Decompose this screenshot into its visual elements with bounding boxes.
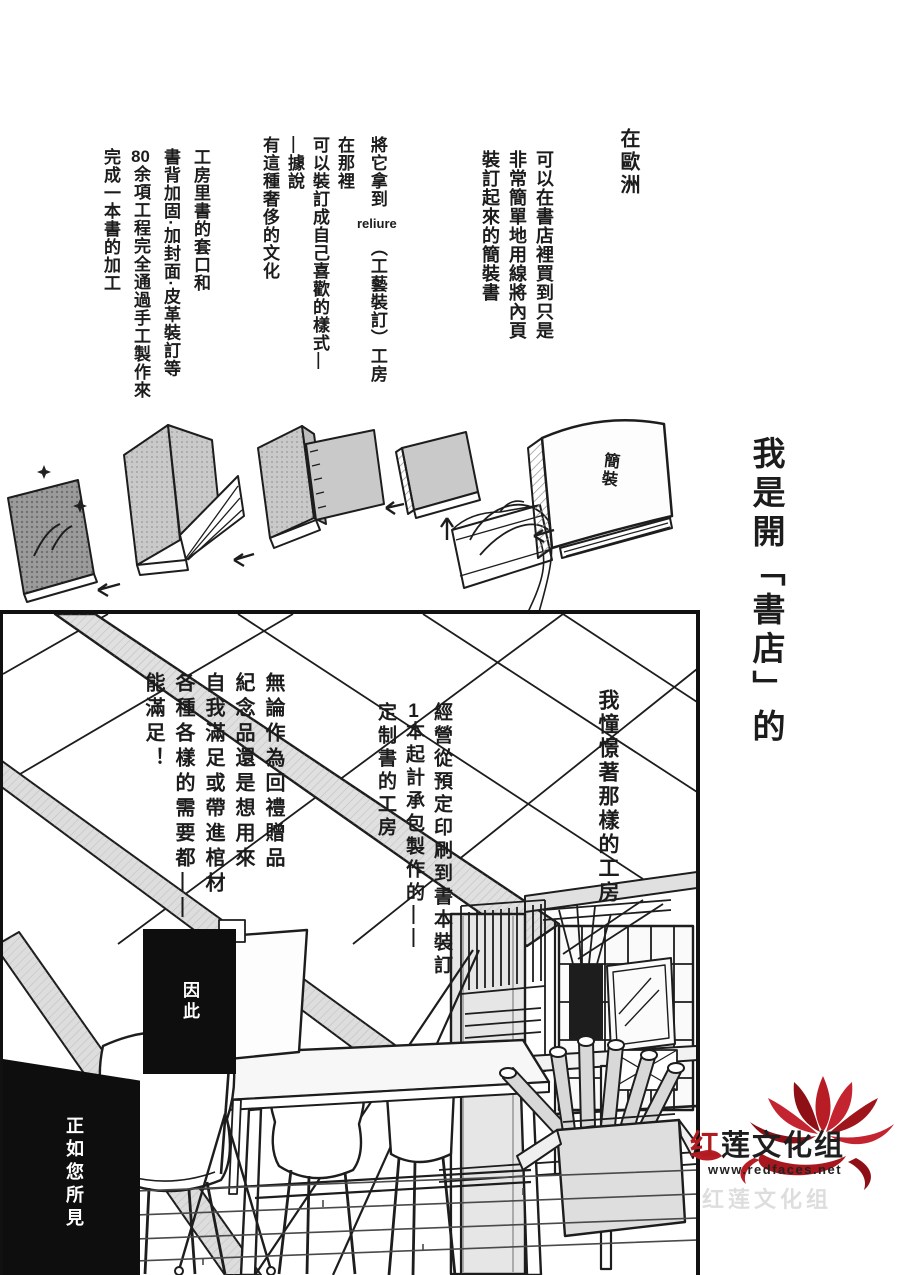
narration-location-text: 在歐洲 bbox=[614, 128, 643, 197]
stitched-block-drawing bbox=[396, 432, 480, 518]
narration-location: 在歐洲 bbox=[614, 128, 643, 197]
number-1: 1 bbox=[403, 702, 424, 721]
logo-url: www.redfaces.net bbox=[708, 1162, 842, 1177]
simple-bound-book-drawing bbox=[528, 420, 672, 558]
logo-ghost: 红莲文化组 bbox=[702, 1182, 832, 1214]
manga-page: 在歐洲 可以在書店裡買到只是 非常簡單地用線將內頁 裝訂起來的簡裝書 將它拿到r… bbox=[0, 0, 900, 1275]
simple-binding-book-label: 簡裝 bbox=[594, 451, 622, 490]
therefore-text: 因此 bbox=[177, 981, 202, 1023]
number-80: 80 bbox=[131, 148, 150, 165]
logo-name: 红莲文化组 bbox=[690, 1122, 845, 1164]
narration-simple-binding: 可以在書店裡買到只是 非常簡單地用線將內頁 裝訂起來的簡裝書 bbox=[476, 150, 557, 340]
narration-handcraft: 工房里書的套口和 書背加固·加封面·皮革裝訂等 80余項工程完全通過手工製作來 … bbox=[95, 148, 215, 399]
margin-narration: 我是開「書店」的 bbox=[742, 436, 790, 748]
therefore-bubble: 因此 bbox=[143, 929, 236, 1074]
narration-uses: 無論作為回禮贈品 紀念品還是想用來 自我滿足或帶進棺材 各種各樣的需要都—— 能… bbox=[138, 672, 288, 922]
scanlation-logo: 红莲文化组 www.redfaces.net 红莲文化组 bbox=[688, 1070, 900, 1220]
narration-admire: 我憧憬著那樣的工房 bbox=[592, 689, 622, 905]
narration-custom-books: 經營從預定印刷到書本裝訂 1本起計承包製作的—— 定制書的工房 bbox=[371, 702, 455, 978]
workshop-panel: 我憧憬著那樣的工房 經營從預定印刷到書本裝訂 1本起計承包製作的—— 定制書的工… bbox=[0, 610, 700, 1275]
corner-caption-text: 正如您所見 bbox=[61, 1116, 87, 1231]
finished-book-drawing bbox=[8, 465, 97, 602]
narration-reliure: 將它拿到reliure（工藝裝訂）工房 在那裡 可以裝訂成自己喜歡的樣式— —據… bbox=[257, 136, 397, 383]
open-book-drawing bbox=[124, 425, 244, 575]
reliure-word: reliure bbox=[357, 211, 397, 236]
cover-fitting-drawing bbox=[258, 426, 384, 548]
